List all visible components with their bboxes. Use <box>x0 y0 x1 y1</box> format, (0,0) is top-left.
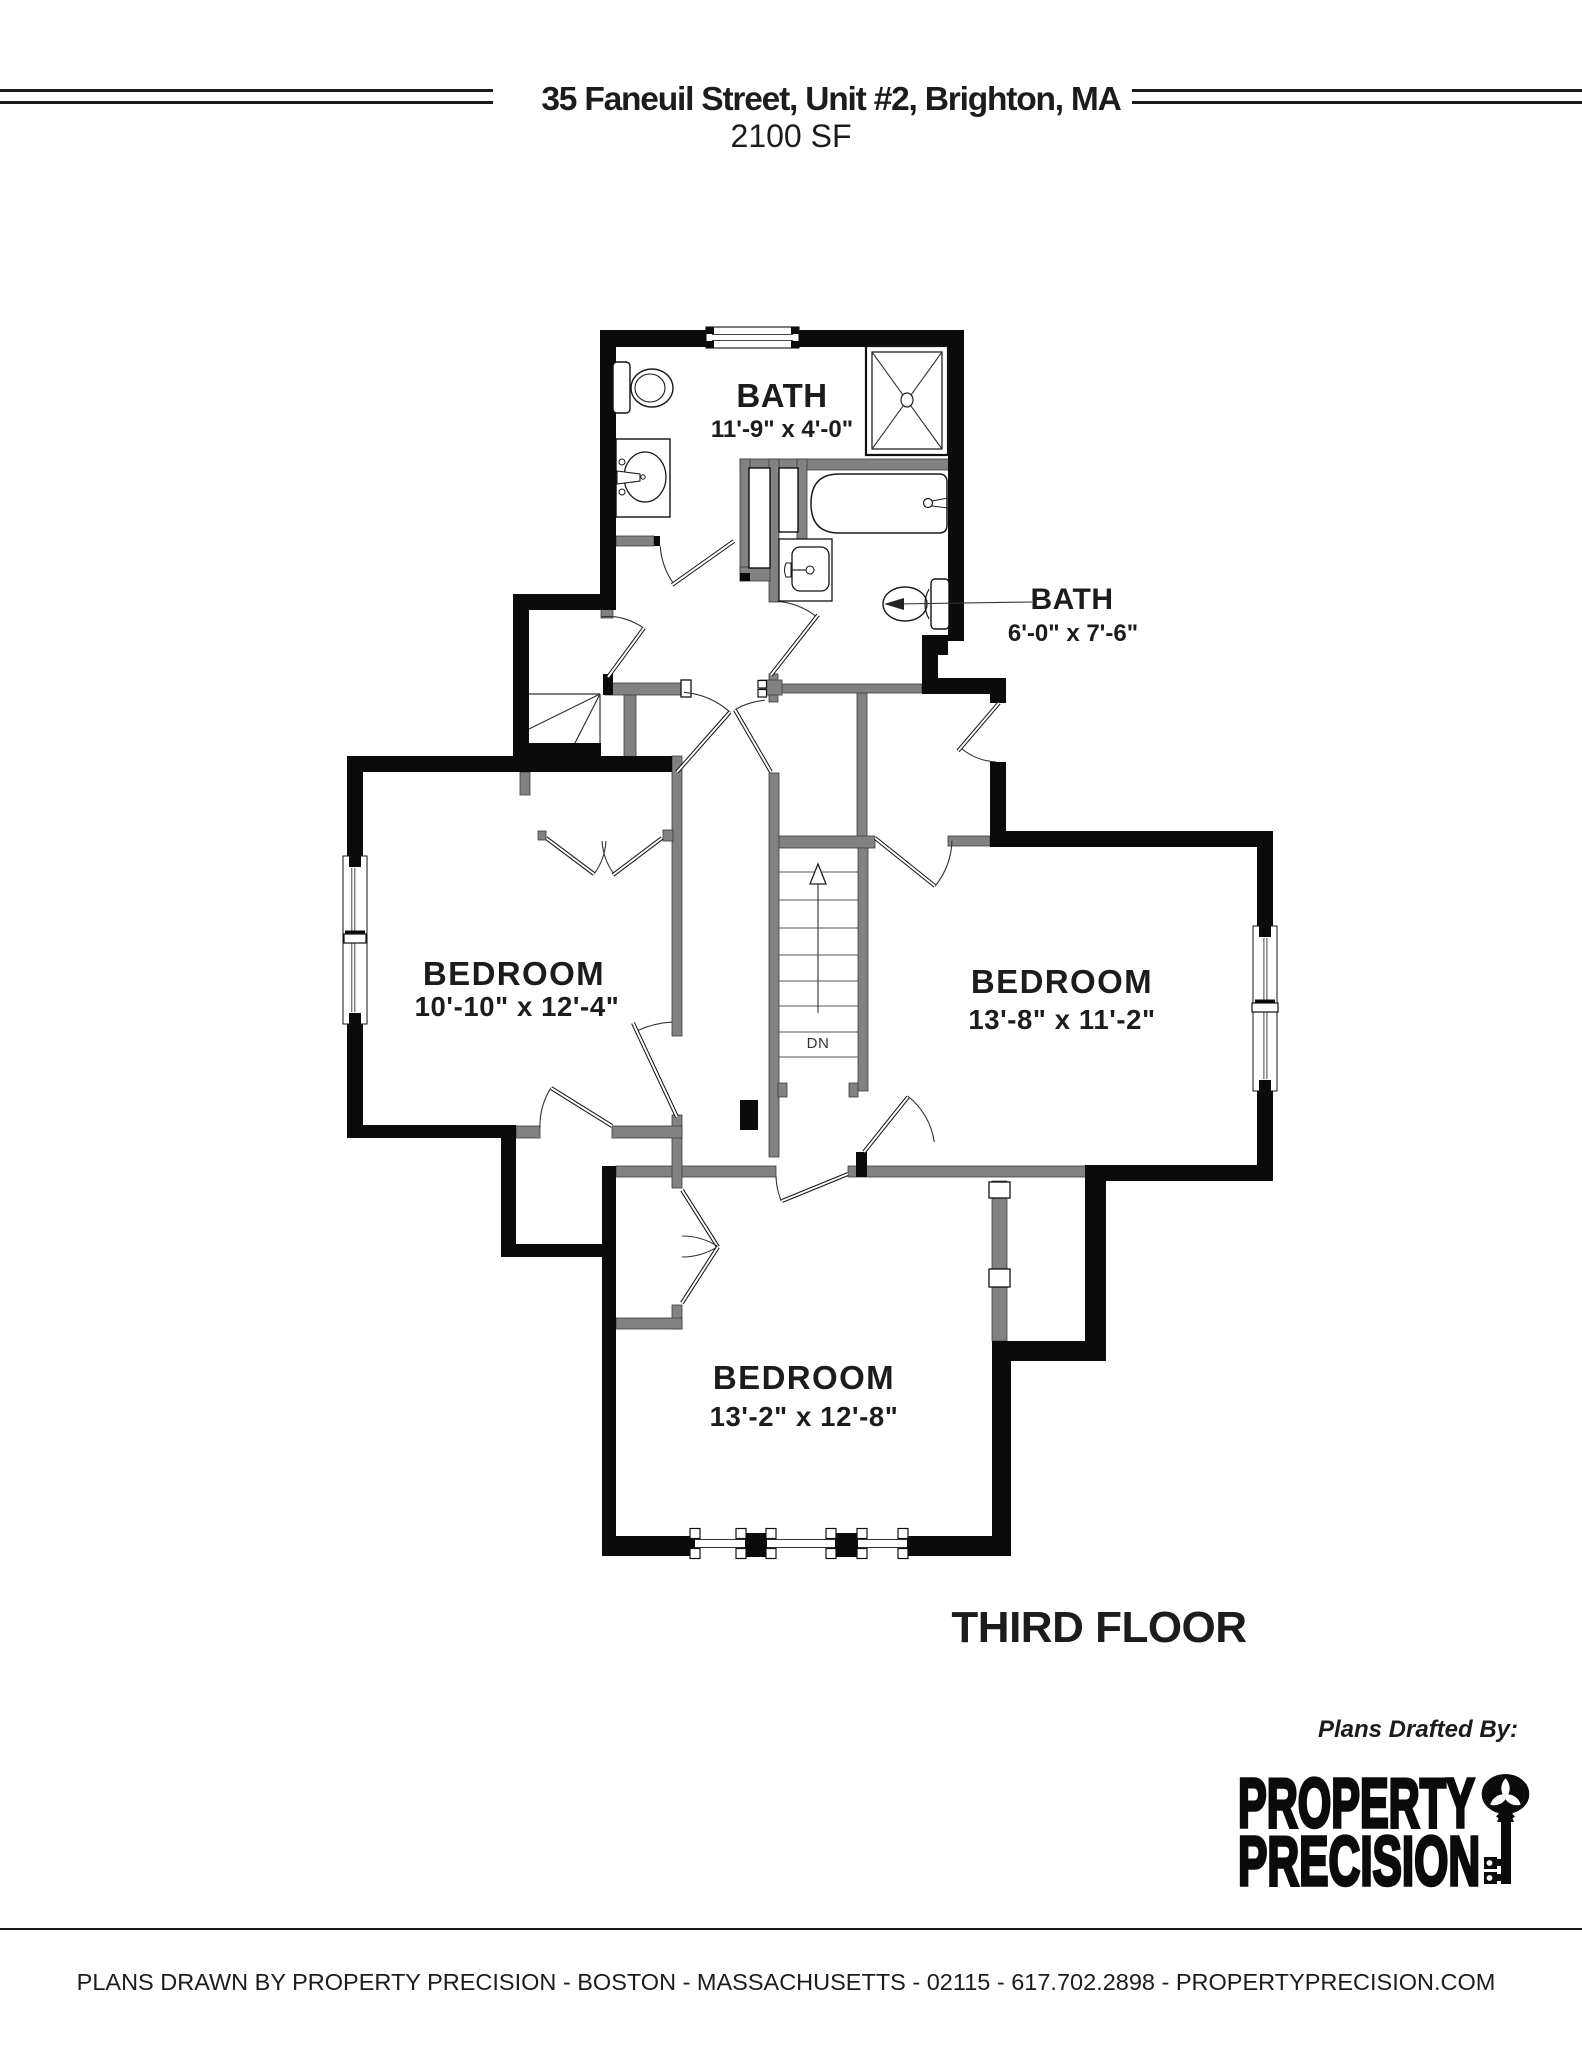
svg-text:BATH: BATH <box>736 377 827 414</box>
svg-text:BEDROOM: BEDROOM <box>971 963 1153 1000</box>
svg-text:10'-10" x 12'-4": 10'-10" x 12'-4" <box>415 991 620 1022</box>
svg-text:2100 SF: 2100 SF <box>731 118 852 154</box>
svg-text:13'-8" x 11'-2": 13'-8" x 11'-2" <box>968 1004 1155 1035</box>
svg-text:DN: DN <box>807 1035 830 1052</box>
svg-text:PLANS DRAWN BY PROPERTY PRECIS: PLANS DRAWN BY PROPERTY PRECISION - BOST… <box>77 1969 1496 1995</box>
svg-text:PRECISION: PRECISION <box>1238 1823 1480 1901</box>
svg-text:6'-0" x 7'-6": 6'-0" x 7'-6" <box>1008 620 1138 647</box>
svg-text:THIRD FLOOR: THIRD FLOOR <box>951 1603 1246 1652</box>
svg-text:13'-2" x 12'-8": 13'-2" x 12'-8" <box>710 1401 899 1432</box>
svg-text:Plans Drafted By:: Plans Drafted By: <box>1318 1716 1518 1743</box>
svg-text:BEDROOM: BEDROOM <box>713 1359 895 1396</box>
svg-text:11'-9" x 4'-0": 11'-9" x 4'-0" <box>711 416 853 443</box>
svg-text:35 Faneuil Street, Unit #2, Br: 35 Faneuil Street, Unit #2, Brighton, MA <box>541 81 1121 118</box>
svg-text:BATH: BATH <box>1030 583 1113 616</box>
svg-text:BEDROOM: BEDROOM <box>423 955 605 992</box>
